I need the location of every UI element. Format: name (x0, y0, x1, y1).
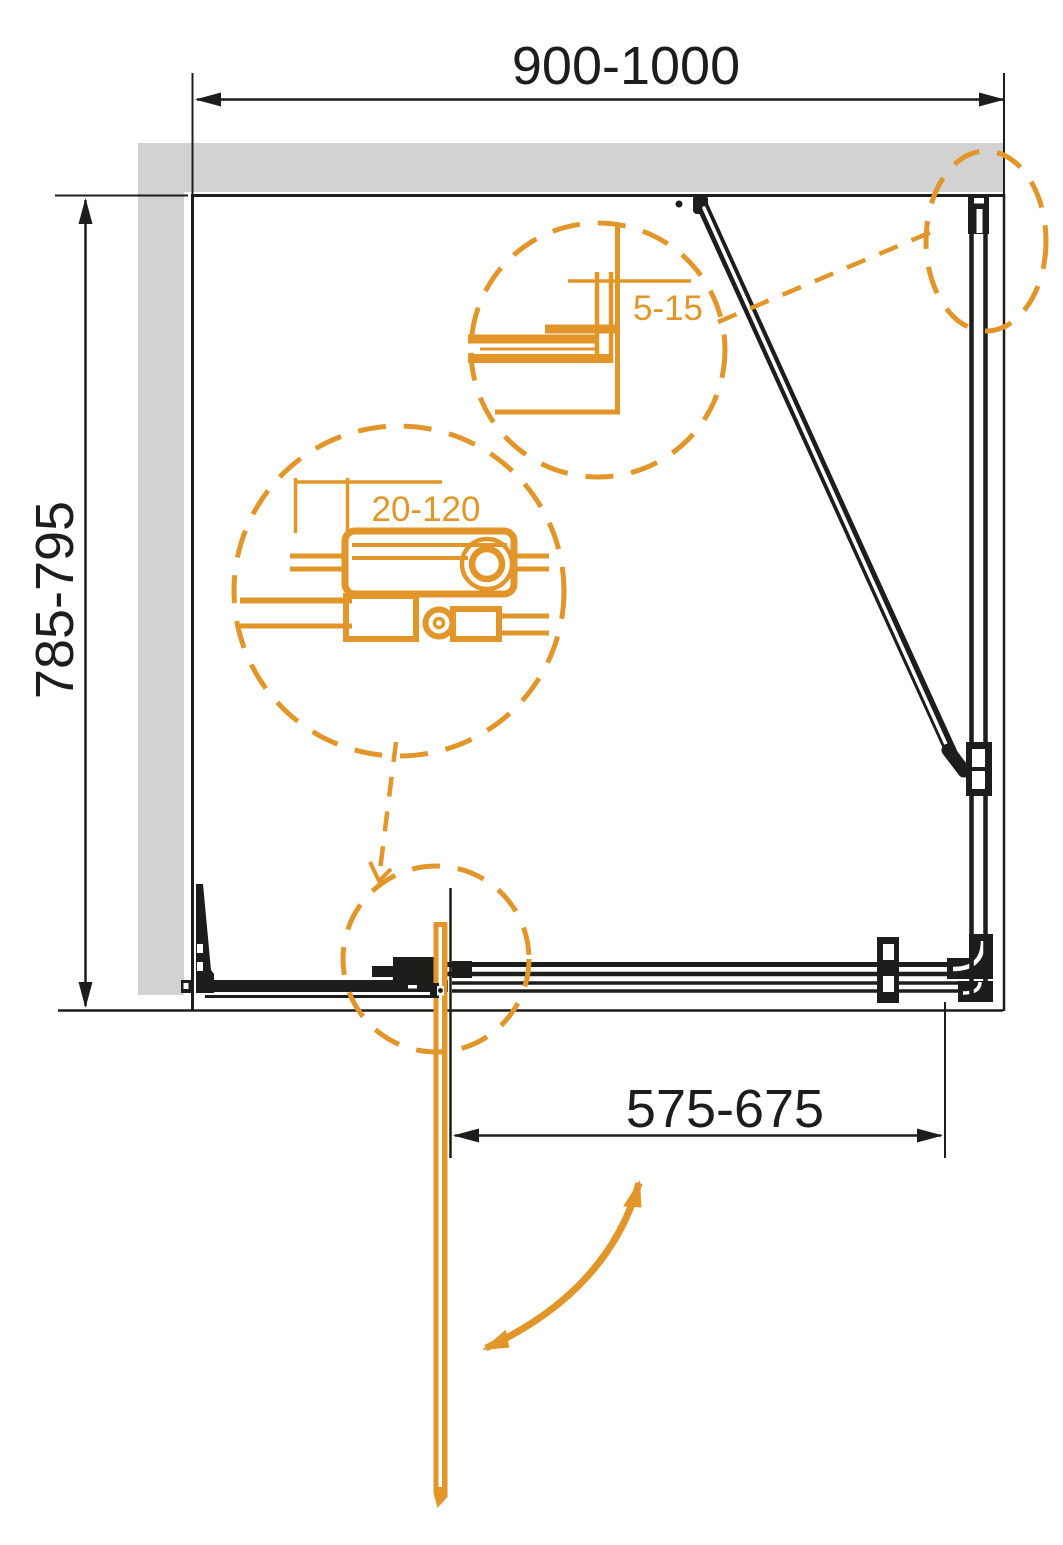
lower-block-right (453, 609, 499, 639)
wall-profile-left (196, 884, 214, 993)
enclosure-outline (58, 73, 1005, 1011)
swing-arc (486, 1183, 639, 1348)
detail-markers (343, 151, 1046, 1052)
wall-top (138, 143, 1004, 192)
door-open-position (667, 195, 993, 796)
door-swing-arrow (478, 1178, 648, 1359)
clamp-slot-bottom (883, 976, 894, 992)
door-glass-open-centerline (704, 208, 949, 751)
profile-glass-slot (977, 209, 983, 233)
bracket-adjust-label: 20-120 (372, 490, 481, 529)
width-dimension-label: 900-1000 (512, 36, 740, 96)
dimension-width: 900-1000 (195, 36, 1005, 107)
bar-slot (408, 985, 417, 989)
hinge-screw (676, 201, 683, 208)
profile-slot (974, 198, 984, 204)
door-bracket-right (452, 961, 472, 978)
adjust-screw-center (435, 619, 444, 628)
profile-slot (197, 944, 203, 953)
panel-fitting-slot (972, 749, 985, 767)
door-dimension-label: 575-675 (626, 1079, 824, 1139)
wall-fixing-slot (184, 983, 189, 989)
door-bottom-tip (434, 1493, 448, 1508)
profile-adjust-label: 5-15 (633, 289, 703, 328)
detail-circle-wall-profile: 5-15 (468, 223, 725, 477)
panel-fitting-slot (972, 771, 985, 789)
pivot-screw (438, 988, 443, 993)
fixed-panel-right (968, 194, 989, 1001)
wall-left (138, 143, 184, 995)
technical-drawing-page: 900-1000 785-795 (0, 0, 1063, 1545)
detail-circle-roller: 20-120 (234, 426, 564, 756)
leader-to-pivot (379, 742, 396, 878)
lower-block (346, 596, 416, 639)
arrowhead-left (195, 93, 221, 107)
adjust-screw (426, 610, 453, 637)
leader-to-corner (718, 230, 936, 322)
arrowhead-right (917, 1129, 943, 1143)
arrowhead-left (453, 1129, 479, 1143)
arrowhead-right (979, 93, 1005, 107)
depth-dimension-label: 785-795 (25, 501, 85, 699)
door-foot (948, 750, 964, 771)
bracket-stub (372, 966, 393, 977)
arrowhead-bottom (79, 982, 93, 1008)
shower-enclosure-plan-drawing: 900-1000 785-795 (0, 0, 1063, 1545)
arrowhead-top (79, 198, 93, 224)
roller-wheel (472, 549, 502, 579)
clamp-slot-top (883, 944, 894, 960)
profile-slot (197, 962, 203, 971)
bottom-rail-assembly (181, 884, 993, 1003)
